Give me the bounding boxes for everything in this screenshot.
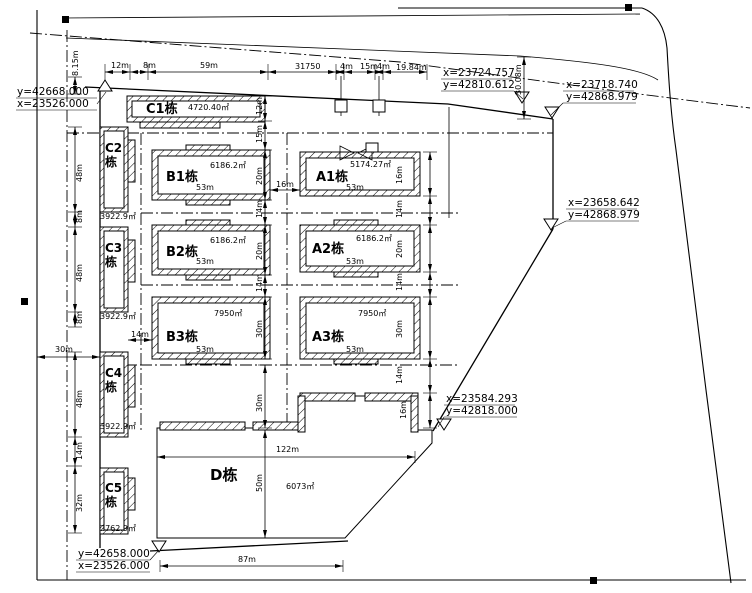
dim-d-top-offset: 30m: [255, 394, 264, 412]
building-area-b2: 6186.2㎡: [210, 236, 246, 245]
dim-top-31750: 31750: [295, 62, 320, 71]
dim-right-16m-a1: 16m: [395, 166, 404, 184]
road-lines: [30, 8, 750, 583]
dim-top-4m-a: 4m: [340, 62, 353, 71]
dim-right-20m-a2: 20m: [395, 240, 404, 258]
dim-right-16m-b: 16m: [399, 401, 408, 419]
dim-a2-width: 53m: [346, 257, 364, 266]
dim-gap-c-b3: 14m: [131, 330, 149, 339]
building-area-c1: 4720.40㎡: [188, 103, 229, 112]
building-area-c5: 2762.9㎡: [100, 524, 136, 533]
dim-d-bottom: 87m: [238, 555, 256, 564]
building-area-a1: 5174.27㎡: [350, 160, 391, 169]
dim-b2-width: 53m: [196, 257, 214, 266]
site-plan-linework: 8.15m12m8m59m317504m15m4m19.84m48m8m48m8…: [0, 0, 752, 593]
dim-top-12m: 12m: [111, 61, 129, 70]
dim-mid-20m-b1: 20m: [255, 167, 264, 185]
coord-e-line2: y=42868.979: [568, 209, 640, 221]
dim-left-8m-b: 8m: [75, 311, 84, 324]
dim-d-height: 50m: [255, 474, 264, 492]
dim-left-top-vertical: 8.15m: [71, 50, 80, 76]
building-C2: [100, 127, 135, 212]
dim-top-4m-b: 4m: [377, 62, 390, 71]
dim-right-14m-c: 14m: [395, 366, 404, 384]
dim-right-14m-b: 14m: [395, 273, 404, 291]
dim-left-48m-c2: 48m: [75, 164, 84, 182]
dim-mid-14m-b: 14m: [255, 274, 264, 292]
building-label-a2: A2栋: [312, 241, 344, 257]
coord-nw-line2: x=23526.000: [17, 98, 89, 110]
dim-top-15m: 15m: [360, 62, 378, 71]
building-label-b2: B2栋: [166, 244, 198, 260]
building-label-b3: B3栋: [166, 329, 198, 345]
building-label-d: D栋: [210, 466, 237, 484]
building-area-a3: 7950㎡: [358, 309, 386, 318]
dim-mid-30m-b3: 30m: [255, 320, 264, 338]
dim-gap-b1-a1: 16m: [276, 180, 294, 189]
coord-sw-line1: y=42658.000: [78, 548, 150, 560]
building-label-a3: A3栋: [312, 329, 344, 345]
dim-left-14m: 14m: [75, 442, 84, 460]
frame-lines: [37, 8, 746, 580]
dim-left-48m-c3: 48m: [75, 264, 84, 282]
dim-top-59m: 59m: [200, 61, 218, 70]
dim-road-width: 30.08m: [514, 64, 523, 95]
dim-top-8m: 8m: [143, 61, 156, 70]
building-area-c4: 3922.9㎡: [100, 422, 136, 431]
coord-gate-line2: y=42810.612: [443, 79, 515, 91]
building-area-c2: 3922.9㎡: [100, 212, 136, 221]
dim-a1-width: 53m: [346, 183, 364, 192]
dim-mid-20m-b2: 20m: [255, 242, 264, 260]
dim-left-8m-a: 8m: [75, 210, 84, 223]
building-D: [157, 393, 432, 538]
building-area-b3: 7950㎡: [214, 309, 242, 318]
dim-right-30m-a3: 30m: [395, 320, 404, 338]
dim-mid-15m: 15m: [255, 125, 264, 143]
building-area-b1: 6186.2㎡: [210, 161, 246, 170]
building-label-b1: B1栋: [166, 169, 198, 185]
building-label-a1: A1栋: [316, 169, 348, 185]
building-area-d: 6073㎡: [286, 482, 314, 491]
site-plan-drawing: 8.15m12m8m59m317504m15m4m19.84m48m8m48m8…: [0, 0, 752, 593]
dim-top-19-84m: 19.84m: [396, 63, 427, 72]
dim-b3-width: 53m: [196, 345, 214, 354]
building-label-c1: C1栋: [146, 101, 178, 117]
dim-left-48m-c4: 48m: [75, 390, 84, 408]
coord-ne-line1: x=23718.740: [566, 79, 638, 91]
coord-se-line2: y=42818.000: [446, 405, 518, 417]
dim-d-width: 122m: [276, 445, 299, 454]
coord-e-line1: x=23658.642: [568, 197, 640, 209]
dim-right-14m-a: 14m: [395, 200, 404, 218]
building-area-c3: 3922.9㎡: [100, 312, 136, 321]
coord-gate-line1: x=23724.757: [443, 67, 515, 79]
coord-sw-line2: x=23526.000: [78, 560, 150, 572]
coord-nw-line1: y=42668.000: [17, 86, 89, 98]
dim-mid-14m-a: 14m: [255, 200, 264, 218]
dim-a3-width: 53m: [346, 345, 364, 354]
coord-se-line1: x=23584.293: [446, 393, 518, 405]
building-area-a2: 6186.2㎡: [356, 234, 392, 243]
dim-left-offset-30m: 30m: [55, 345, 73, 354]
dim-b1-width: 53m: [196, 183, 214, 192]
coord-ne-line2: y=42868.979: [566, 91, 638, 103]
building-C3: [100, 227, 135, 312]
gate-posts: [335, 76, 385, 116]
dim-mid-12m: 12m: [255, 97, 264, 115]
extension-line: [97, 92, 106, 104]
dim-left-32m-c5: 32m: [75, 494, 84, 512]
